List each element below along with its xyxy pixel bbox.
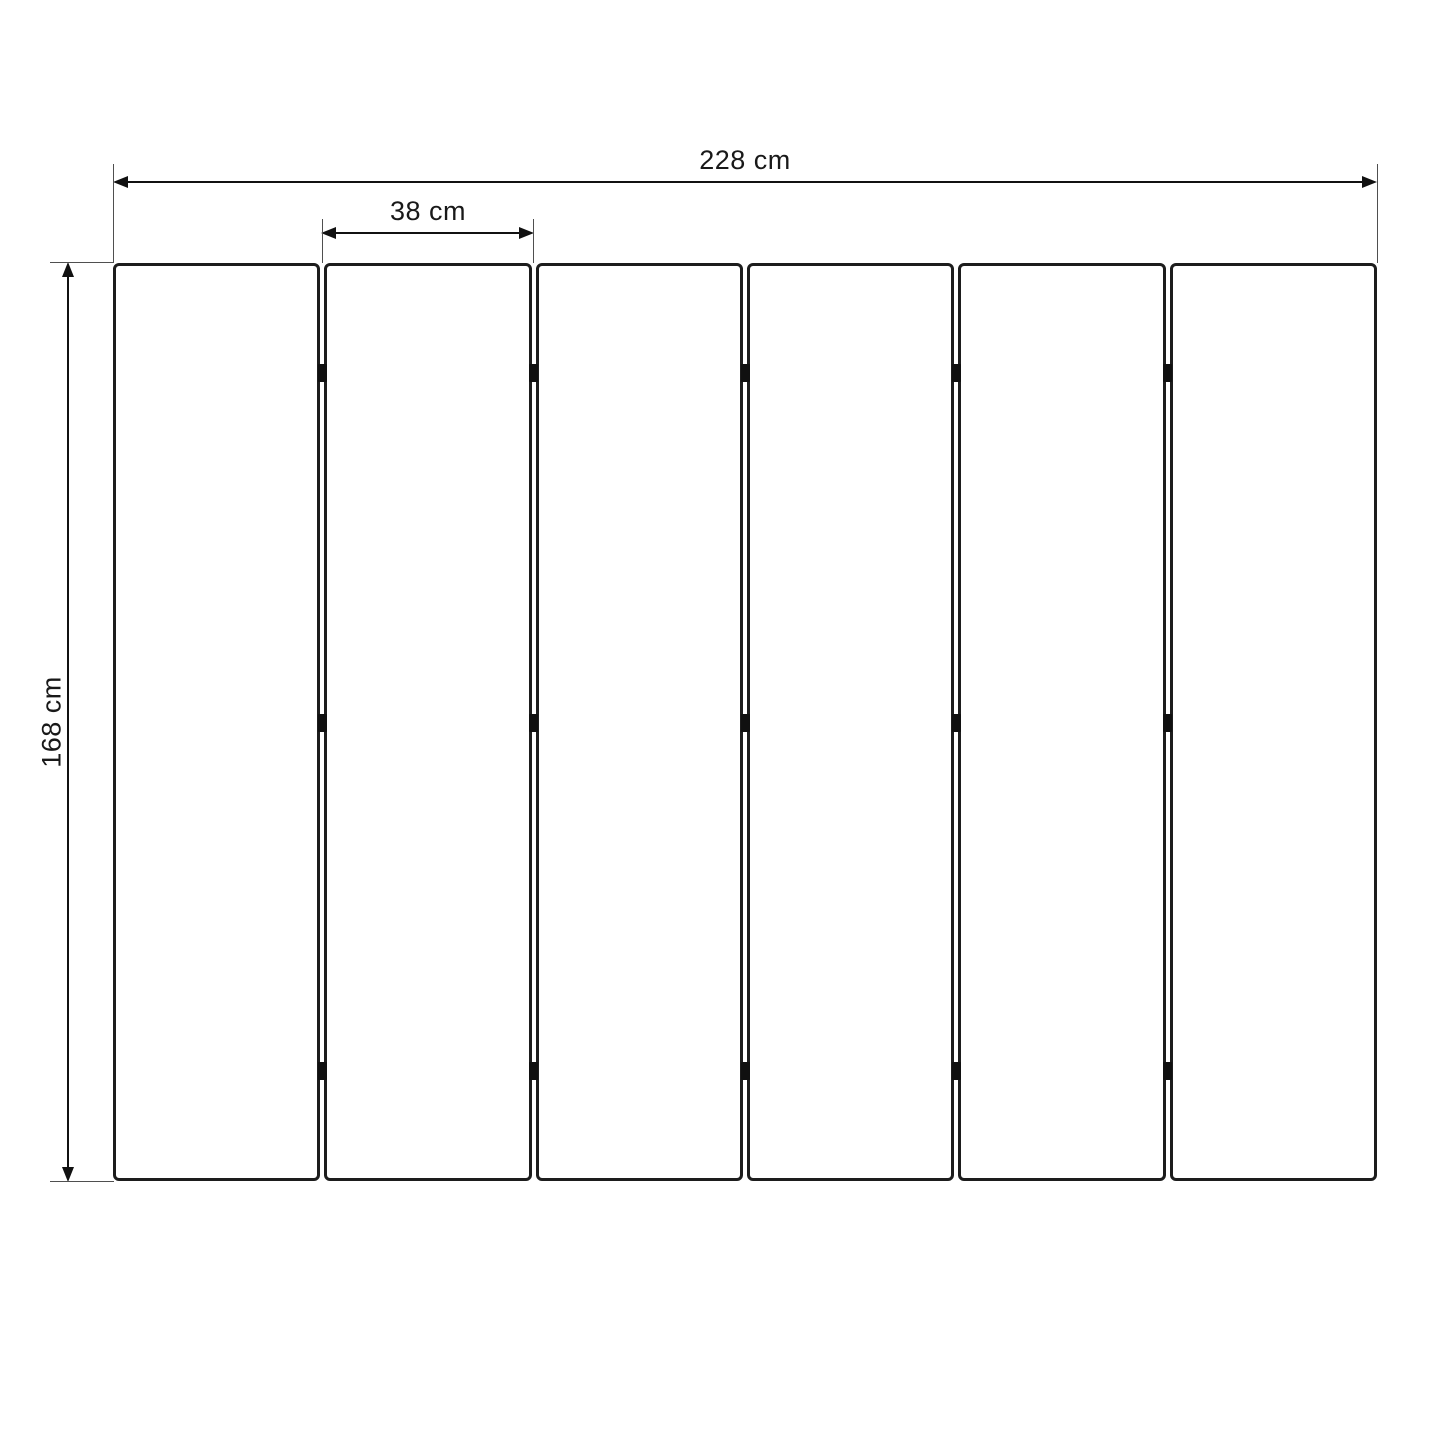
panel xyxy=(536,263,743,1181)
panel xyxy=(113,263,320,1181)
hinge-icon xyxy=(952,714,961,732)
panel-width-dimension-line xyxy=(330,232,525,234)
arrow-right-icon xyxy=(519,227,534,239)
extension-line xyxy=(50,262,114,263)
extension-line xyxy=(113,164,114,263)
hinge-icon xyxy=(1163,714,1172,732)
height-dimension-line xyxy=(67,271,69,1173)
panel-width-dimension-label: 38 cm xyxy=(390,198,466,225)
hinge-icon xyxy=(318,364,327,382)
panel xyxy=(324,263,531,1181)
hinge-column xyxy=(318,263,327,1181)
hinge-column xyxy=(741,263,750,1181)
hinge-icon xyxy=(318,714,327,732)
hinge-icon xyxy=(741,1062,750,1080)
hinge-icon xyxy=(952,364,961,382)
panel xyxy=(958,263,1165,1181)
panel xyxy=(1170,263,1377,1181)
hinge-column xyxy=(952,263,961,1181)
extension-line xyxy=(533,219,534,263)
hinge-icon xyxy=(529,364,538,382)
arrow-up-icon xyxy=(62,262,74,277)
hinge-icon xyxy=(741,364,750,382)
diagram-canvas: 228 cm 38 cm 168 cm xyxy=(0,0,1445,1445)
hinge-icon xyxy=(529,714,538,732)
hinge-icon xyxy=(529,1062,538,1080)
extension-line xyxy=(322,219,323,263)
hinge-icon xyxy=(1163,364,1172,382)
panel xyxy=(747,263,954,1181)
total-width-dimension-label: 228 cm xyxy=(699,147,791,174)
extension-line xyxy=(50,1181,114,1182)
arrow-down-icon xyxy=(62,1167,74,1182)
panel-row xyxy=(113,263,1377,1181)
hinge-icon xyxy=(1163,1062,1172,1080)
hinge-icon xyxy=(318,1062,327,1080)
hinge-column xyxy=(1163,263,1172,1181)
hinge-column xyxy=(529,263,538,1181)
height-dimension-label: 168 cm xyxy=(39,676,66,768)
arrow-right-icon xyxy=(1362,176,1377,188)
hinge-icon xyxy=(741,714,750,732)
total-width-dimension-line xyxy=(122,181,1368,183)
arrow-left-icon xyxy=(113,176,128,188)
arrow-left-icon xyxy=(321,227,336,239)
extension-line xyxy=(1377,164,1378,263)
hinge-icon xyxy=(952,1062,961,1080)
